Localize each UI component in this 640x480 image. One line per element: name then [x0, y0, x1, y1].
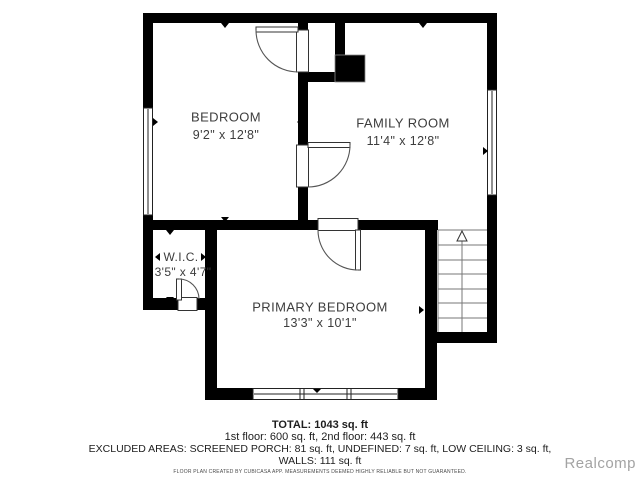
tick-icon	[166, 230, 174, 235]
primary-bedroom-door-frame	[318, 219, 358, 231]
wall-segment	[487, 23, 497, 90]
bedroom-window	[144, 108, 153, 215]
total-area-text: TOTAL: 1043 sq. ft	[0, 419, 640, 431]
family-room-label: FAMILY ROOM	[356, 116, 450, 131]
wall-segment	[205, 388, 253, 400]
wall-segment	[143, 13, 497, 23]
excluded-areas-text: EXCLUDED AREAS: SCREENED PORCH: 81 sq. f…	[0, 443, 640, 455]
tick-icon	[221, 23, 229, 28]
wic-door	[177, 279, 200, 300]
wall-segment	[398, 388, 435, 400]
primary-bedroom-window	[253, 389, 398, 400]
tick-icon	[155, 253, 160, 261]
tick-icon	[419, 23, 427, 28]
wall-segment	[308, 72, 335, 82]
bedroom-door-frame	[297, 30, 309, 72]
walls-area-text: WALLS: 111 sq. ft	[0, 455, 640, 467]
primary-bedroom-label: PRIMARY BEDROOM	[252, 300, 388, 315]
wic-dimensions: 3'5" x 4'7"	[155, 265, 212, 279]
family-room-window	[488, 90, 497, 195]
floor-plan-page: BEDROOM 9'2" x 12'8" FAMILY ROOM 11'4" x…	[0, 0, 640, 480]
disclaimer-text: FLOOR PLAN CREATED BY CUBICASA APP. MEAS…	[0, 469, 640, 475]
bedroom-door	[256, 27, 298, 72]
family-room-dimensions: 11'4" x 12'8"	[367, 134, 440, 148]
staircase	[438, 230, 487, 332]
tick-icon	[153, 118, 158, 126]
wall-segment	[425, 220, 437, 400]
wall-segment	[298, 72, 308, 145]
bedroom-dimensions: 9'2" x 12'8"	[193, 128, 259, 142]
wic-label: W.I.C.	[163, 250, 198, 264]
bedroom-label: BEDROOM	[191, 110, 261, 125]
wall-segment	[205, 230, 217, 400]
realcomp-watermark: Realcomp	[564, 455, 636, 472]
primary-bedroom-dimensions: 13'3" x 10'1"	[283, 316, 357, 330]
wall-segment	[143, 298, 178, 310]
doors	[177, 27, 361, 300]
primary-bedroom-door	[318, 230, 361, 270]
wall-segment	[143, 23, 153, 108]
family-room-door	[308, 143, 350, 188]
chimney-block	[335, 55, 365, 82]
wall-segment	[425, 332, 497, 343]
walls	[143, 13, 497, 400]
floor-areas-text: 1st floor: 600 sq. ft, 2nd floor: 443 sq…	[0, 431, 640, 443]
family-room-door-frame	[297, 145, 309, 187]
tick-icon	[419, 306, 424, 314]
wall-segment	[143, 220, 318, 230]
stairs-up-arrow-icon	[457, 231, 467, 241]
wall-segment	[487, 195, 497, 343]
floor-plan-drawing	[0, 0, 640, 480]
